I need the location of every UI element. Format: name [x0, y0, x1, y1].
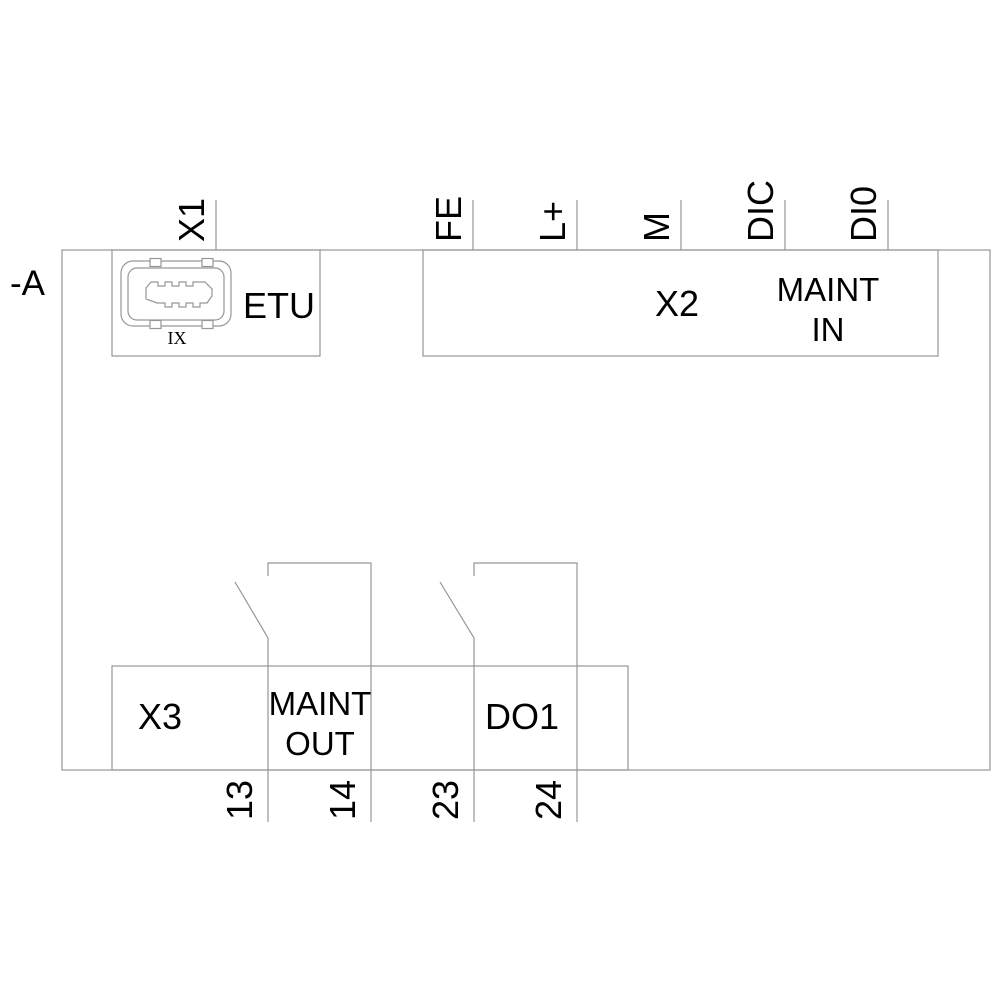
terminal-label-13: 13	[222, 780, 258, 820]
port-tab-top-left	[150, 259, 161, 267]
x2-title-line1: MAINT	[728, 270, 928, 310]
terminal-label-24: 24	[531, 780, 567, 820]
terminal-label-di0: DI0	[846, 186, 882, 242]
x3-title-line1: MAINT	[220, 684, 420, 724]
x3-title: MAINT OUT	[220, 684, 420, 764]
etu-label: ETU	[179, 288, 379, 324]
x2-title: MAINT IN	[728, 270, 928, 350]
x1-terminal-label: X1	[174, 198, 210, 242]
device-tag: -A	[10, 266, 45, 301]
port-tab-top-right	[202, 259, 213, 267]
x3-title-line2: OUT	[220, 724, 420, 764]
port-tab-bottom-left	[150, 321, 161, 329]
terminal-label-fe: FE	[431, 196, 467, 242]
terminal-label-lplus: L+	[535, 201, 571, 242]
do1-label: DO1	[422, 699, 622, 735]
terminal-label-23: 23	[428, 780, 464, 820]
contact-blade-23	[440, 582, 474, 638]
x2-title-line2: IN	[728, 310, 928, 350]
wiring-diagram-page: -A X1 ETU IX X2 MAINT IN FE L+ M DIC DI0…	[0, 0, 1000, 1000]
terminal-label-m: M	[639, 212, 675, 242]
ix-port-label: IX	[127, 329, 227, 347]
wiring-diagram	[0, 0, 1000, 1000]
contact-blade-13	[235, 582, 268, 638]
terminal-label-14: 14	[325, 780, 361, 820]
terminal-label-dic: DIC	[743, 180, 779, 242]
